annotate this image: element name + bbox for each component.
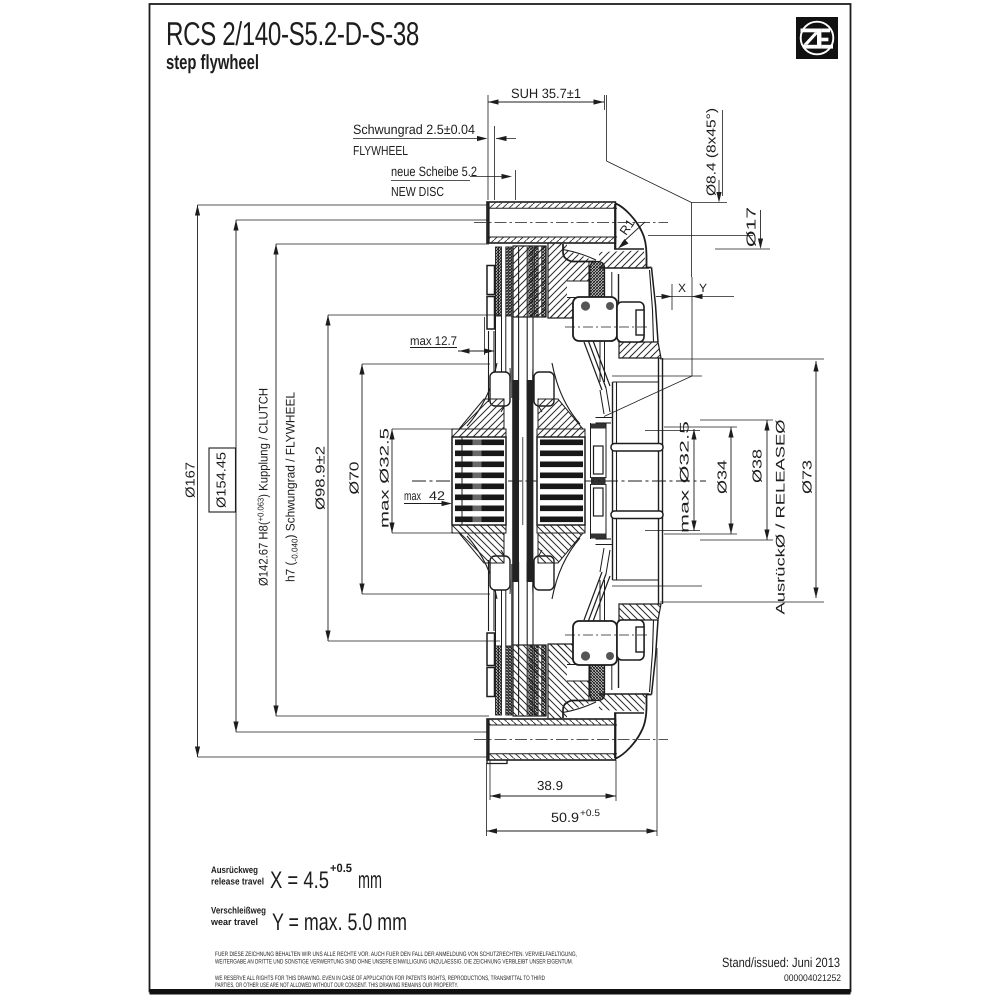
svg-text:mm: mm	[358, 867, 382, 894]
svg-text:release travel: release travel	[211, 877, 264, 888]
svg-text:max Ø32.5: max Ø32.5	[678, 421, 692, 533]
svg-text:Ø73: Ø73	[800, 460, 815, 494]
svg-text:Ø142.67 H8(+0.063) Kupplung /: Ø142.67 H8(+0.063) Kupplung / CLUTCH	[256, 388, 271, 586]
svg-text:WEITERGABE AN DRITTE UND SONST: WEITERGABE AN DRITTE UND SONSTIGE VERWER…	[215, 959, 573, 966]
svg-text:max 12.7: max 12.7	[410, 334, 457, 348]
svg-text:Y: Y	[699, 281, 707, 295]
svg-text:max: max	[404, 489, 422, 503]
svg-text:FLYWHEEL: FLYWHEEL	[353, 143, 408, 158]
svg-text:wear travel: wear travel	[210, 917, 258, 928]
svg-text:max Ø32.5: max Ø32.5	[378, 428, 392, 528]
svg-text:Ø17: Ø17	[744, 207, 759, 247]
svg-text:Ø8.4 (8x45°): Ø8.4 (8x45°)	[704, 108, 719, 196]
svg-text:Y = max. 5.0 mm: Y = max. 5.0 mm	[272, 909, 407, 936]
svg-text:Ø167: Ø167	[183, 462, 198, 498]
svg-text:X: X	[678, 281, 686, 295]
svg-text:+0.5: +0.5	[330, 861, 352, 875]
svg-text:FUER DIESE ZEICHNUNG BEHALTEN: FUER DIESE ZEICHNUNG BEHALTEN WIR UNS AL…	[215, 951, 577, 958]
svg-text:Ø38: Ø38	[750, 449, 765, 483]
svg-text:AusrückØ / RELEASEØ: AusrückØ / RELEASEØ	[774, 419, 788, 614]
svg-text:Ø154.45: Ø154.45	[214, 452, 229, 508]
svg-text:50.9: 50.9	[551, 810, 579, 825]
svg-text:Ø98.9±2: Ø98.9±2	[313, 446, 328, 510]
svg-text:38.9: 38.9	[537, 778, 563, 793]
svg-text:Schwungrad 2.5±0.04: Schwungrad 2.5±0.04	[353, 122, 475, 137]
svg-text:Ausrückweg: Ausrückweg	[211, 865, 258, 876]
svg-text:PARTIES, OR OTHER USE ARE NOT: PARTIES, OR OTHER USE ARE NOT ALLOWED WI…	[215, 982, 458, 989]
svg-text:42: 42	[429, 489, 445, 503]
svg-text:Ø70: Ø70	[347, 462, 362, 495]
svg-text:SUH 35.7±1: SUH 35.7±1	[511, 86, 581, 101]
svg-text:Ø34: Ø34	[715, 460, 730, 494]
svg-text:000004021252: 000004021252	[784, 973, 841, 984]
svg-text:neue Scheibe 5.2: neue Scheibe 5.2	[391, 164, 477, 179]
svg-text:WE RESERVE ALL RIGHTS FOR THIS: WE RESERVE ALL RIGHTS FOR THIS DRAWING. …	[215, 975, 545, 982]
svg-text:Verschleißweg: Verschleißweg	[211, 906, 266, 917]
svg-text:Stand/issued: Juni 2013: Stand/issued: Juni 2013	[722, 955, 840, 970]
svg-text:RCS 2/140-S5.2-D-S-38: RCS 2/140-S5.2-D-S-38	[166, 15, 419, 52]
svg-text:NEW DISC: NEW DISC	[391, 184, 444, 199]
svg-text:X = 4.5: X = 4.5	[270, 867, 329, 894]
svg-text:step flywheel: step flywheel	[166, 51, 259, 74]
svg-text:+0.5: +0.5	[580, 808, 600, 819]
